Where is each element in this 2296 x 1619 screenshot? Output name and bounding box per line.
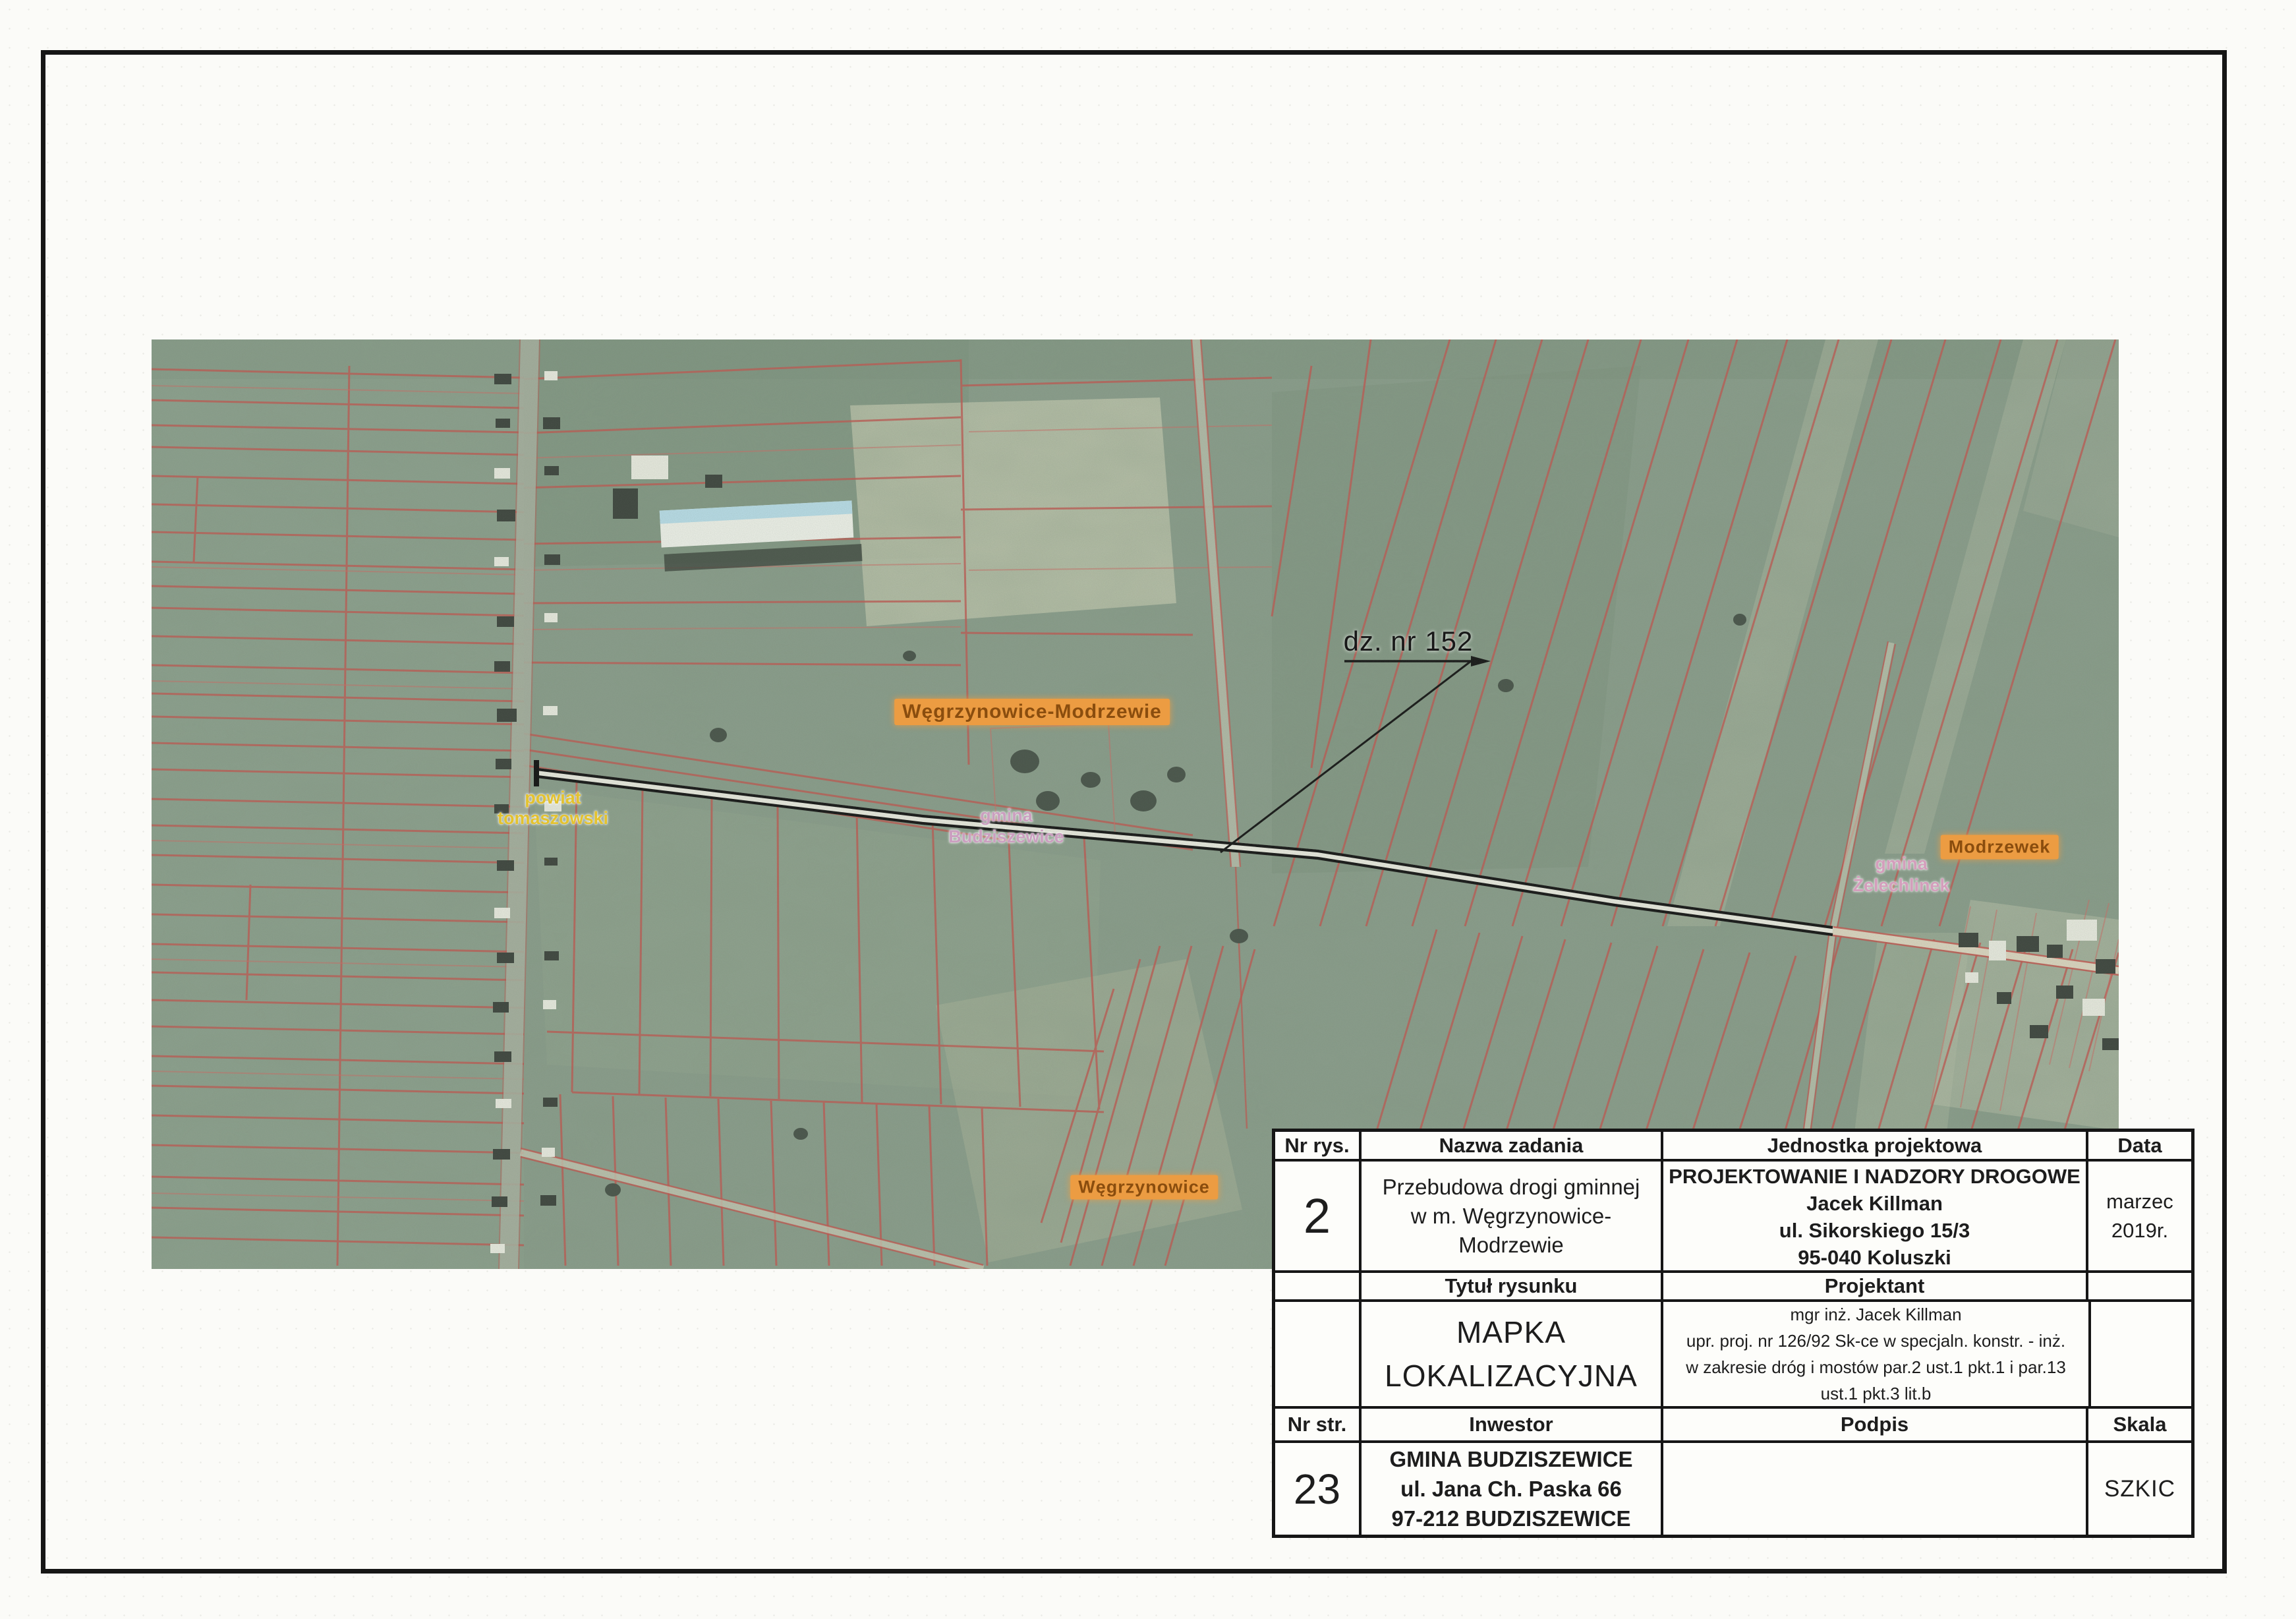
label-line: gmina — [1852, 853, 1949, 875]
investor-line: 97-212 BUDZISZEWICE — [1391, 1504, 1630, 1533]
drawing-title: MAPKA LOKALIZACYJNA — [1362, 1302, 1663, 1409]
date-value: marzec 2019r. — [2088, 1162, 2191, 1273]
drawing-number: 2 — [1275, 1162, 1362, 1273]
drawing-title-line: LOKALIZACYJNA — [1385, 1354, 1638, 1398]
design-unit-line: PROJEKTOWANIE I NADZORY DROGOWE — [1669, 1163, 2081, 1190]
label-powiat-tomaszowski: powiat tomaszowski — [498, 788, 608, 829]
scale-value: SZKIC — [2088, 1443, 2191, 1535]
label-line: tomaszowski — [498, 808, 608, 829]
designer-line: mgr inż. Jacek Killman — [1790, 1302, 1961, 1328]
header-jednostka-projektowa: Jednostka projektowa — [1663, 1132, 2088, 1162]
page-number: 23 — [1275, 1443, 1362, 1535]
investor-line: GMINA BUDZISZEWICE — [1389, 1444, 1632, 1474]
designer-line: w zakresie dróg i mostów par.2 ust.1 pkt… — [1686, 1354, 2066, 1380]
header-nr-rys: Nr rys. — [1275, 1132, 1362, 1162]
empty-cell — [1275, 1302, 1362, 1409]
designer-line: upr. proj. nr 126/92 Sk-ce w specjaln. k… — [1686, 1328, 2065, 1354]
label-wegrzynowice-modrzewie: Węgrzynowice-Modrzewie — [894, 699, 1170, 725]
task-name-line: Modrzewie — [1458, 1231, 1564, 1260]
label-line: Żelechlinek — [1852, 875, 1949, 897]
header-inwestor: Inwestor — [1362, 1409, 1663, 1443]
label-gmina-zelechlinek: gmina Żelechlinek — [1852, 853, 1949, 897]
header-nazwa-zadania: Nazwa zadania — [1362, 1132, 1663, 1162]
date-line: marzec — [2106, 1187, 2173, 1216]
design-unit-line: ul. Sikorskiego 15/3 — [1779, 1217, 1970, 1244]
empty-cell — [1275, 1273, 1362, 1302]
title-block-table: Nr rys. Nazwa zadania Jednostka projekto… — [1272, 1129, 2195, 1538]
header-skala: Skala — [2088, 1409, 2191, 1443]
design-unit: PROJEKTOWANIE I NADZORY DROGOWE Jacek Ki… — [1663, 1162, 2088, 1273]
design-unit-line: 95-040 Koluszki — [1798, 1244, 1951, 1271]
task-name: Przebudowa drogi gminnej w m. Węgrzynowi… — [1362, 1162, 1663, 1273]
header-nr-str: Nr str. — [1275, 1409, 1362, 1443]
scanned-sheet: dz. nr 152 Węgrzynowice-Modrzewie gmina … — [0, 0, 2296, 1619]
label-gmina-budziszewice: gmina Budziszewice — [948, 805, 1064, 847]
investor: GMINA BUDZISZEWICE ul. Jana Ch. Paska 66… — [1362, 1443, 1663, 1535]
label-modrzewek: Modrzewek — [1941, 835, 2059, 860]
header-tytul-rysunku: Tytuł rysunku — [1362, 1273, 1663, 1302]
task-name-line: w m. Węgrzynowice- — [1411, 1202, 1611, 1231]
task-name-line: Przebudowa drogi gminnej — [1383, 1173, 1640, 1202]
parcel-number-annotation: dz. nr 152 — [1344, 626, 1474, 657]
designer-credentials: mgr inż. Jacek Killman upr. proj. nr 126… — [1663, 1302, 2091, 1409]
date-line: 2019r. — [2111, 1216, 2168, 1245]
header-projektant: Projektant — [1663, 1273, 2088, 1302]
signature-cell — [1663, 1443, 2088, 1535]
label-line: Budziszewice — [948, 826, 1064, 847]
investor-line: ul. Jana Ch. Paska 66 — [1400, 1474, 1622, 1504]
drawing-title-line: MAPKA — [1456, 1310, 1566, 1354]
designer-line: ust.1 pkt.3 lit.b — [1821, 1380, 1932, 1407]
design-unit-line: Jacek Killman — [1806, 1190, 1943, 1217]
label-line: powiat — [498, 788, 608, 808]
empty-cell — [2088, 1302, 2191, 1409]
header-data: Data — [2088, 1132, 2191, 1162]
label-line: gmina — [948, 805, 1064, 826]
label-wegrzynowice: Węgrzynowice — [1070, 1175, 1218, 1200]
header-podpis: Podpis — [1663, 1409, 2088, 1443]
empty-cell — [2088, 1273, 2191, 1302]
